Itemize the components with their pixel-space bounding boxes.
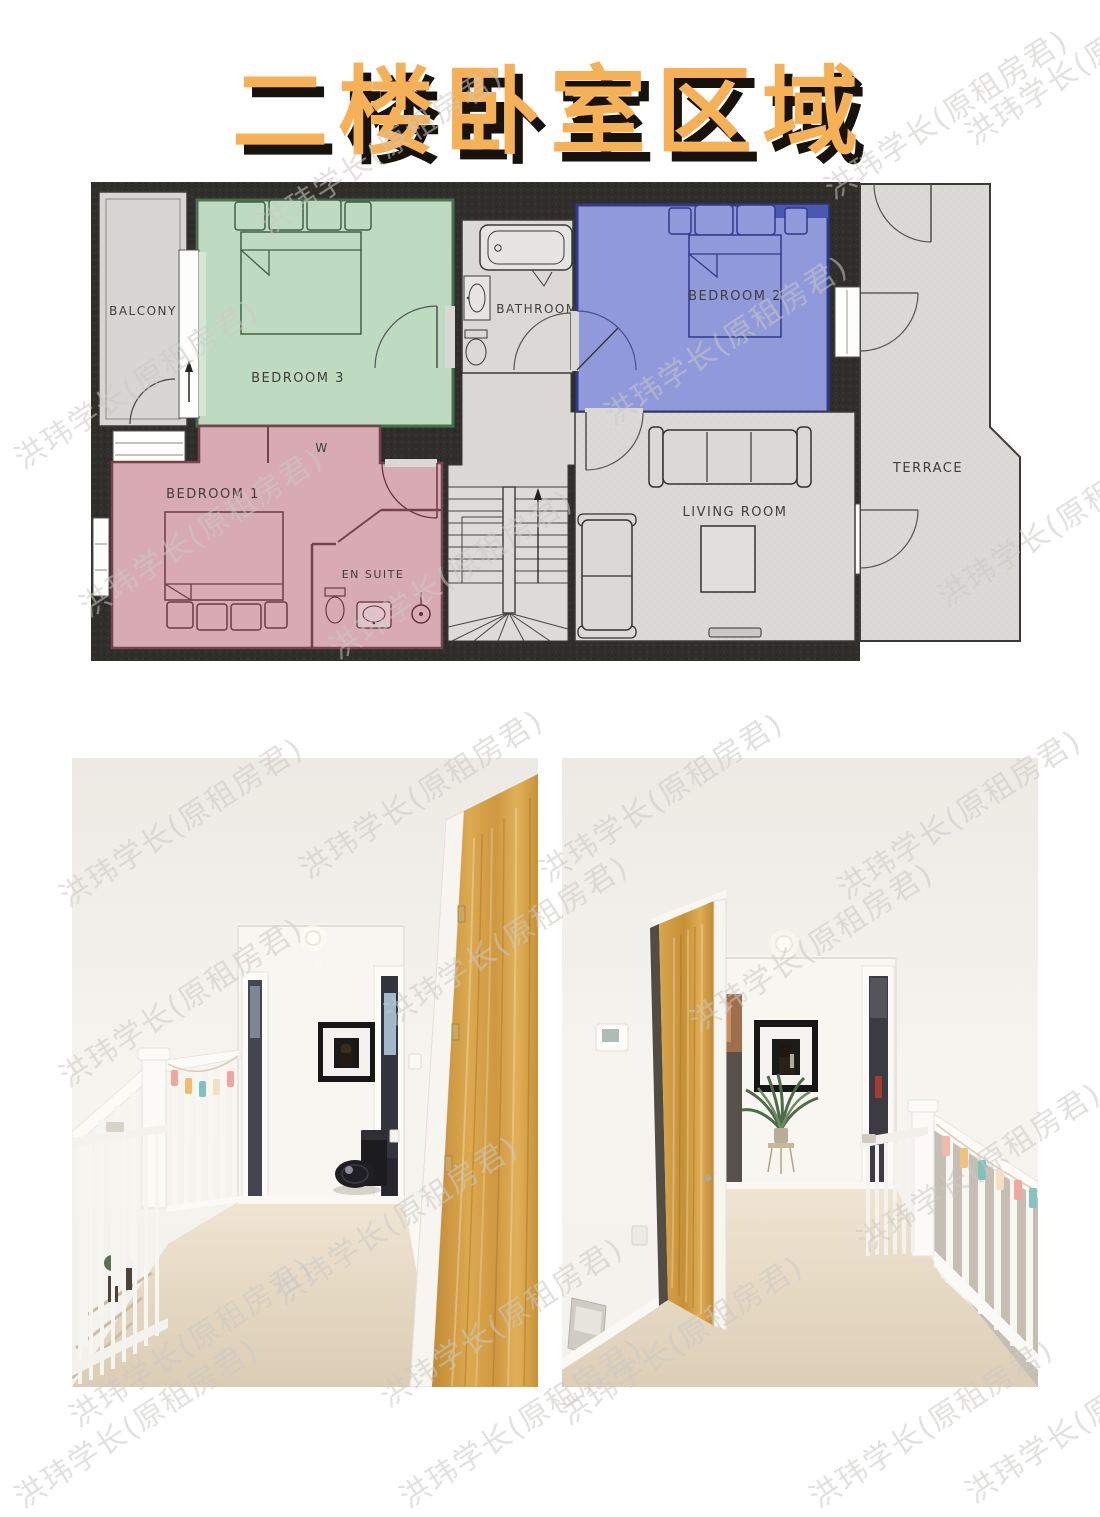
room-living: LIVING ROOM xyxy=(575,408,855,641)
label-bedroom2: BEDROOM 2 xyxy=(688,289,782,304)
page-title: 二楼卧室区域 xyxy=(0,34,1100,173)
room-bedroom2: BEDROOM 2 xyxy=(571,205,828,412)
label-living-room: LIVING ROOM xyxy=(683,505,788,520)
door-handle xyxy=(705,1175,712,1182)
room-terrace: TERRACE xyxy=(835,184,1020,641)
label-bathroom: BATHROOM xyxy=(496,302,577,316)
hallway-photo-left xyxy=(72,758,538,1387)
door-hinge xyxy=(458,906,465,922)
light-switch xyxy=(409,1054,421,1069)
label-ensuite: EN SUITE xyxy=(342,568,405,581)
doorway-left xyxy=(242,972,268,1202)
label-wardrobe: W xyxy=(315,441,328,455)
thermostat xyxy=(596,1024,628,1051)
floor-plan: TERRACE BALCONY BEDROOM 3 xyxy=(85,180,1022,663)
door-hinge xyxy=(445,1156,452,1172)
framed-artwork xyxy=(318,1022,375,1082)
light-switch xyxy=(632,1226,647,1245)
room-bathroom: BATHROOM xyxy=(462,220,578,373)
framed-artwork xyxy=(754,1020,818,1092)
staircase xyxy=(448,487,568,641)
wooden-door xyxy=(648,890,726,1330)
floor-plan-drawing: TERRACE BALCONY BEDROOM 3 xyxy=(85,180,1022,663)
hallway-photo-right xyxy=(562,758,1038,1387)
real-estate-listing-page: { "page": { "background": "#FFFFFF", "wa… xyxy=(0,0,1100,1467)
label-bedroom3: BEDROOM 3 xyxy=(251,371,345,386)
label-balcony: BALCONY xyxy=(109,304,177,318)
label-terrace: TERRACE xyxy=(892,461,963,476)
door-hinge xyxy=(452,1024,459,1040)
room-bedroom3: BEDROOM 3 xyxy=(179,200,455,426)
label-bedroom1: BEDROOM 1 xyxy=(166,487,260,502)
